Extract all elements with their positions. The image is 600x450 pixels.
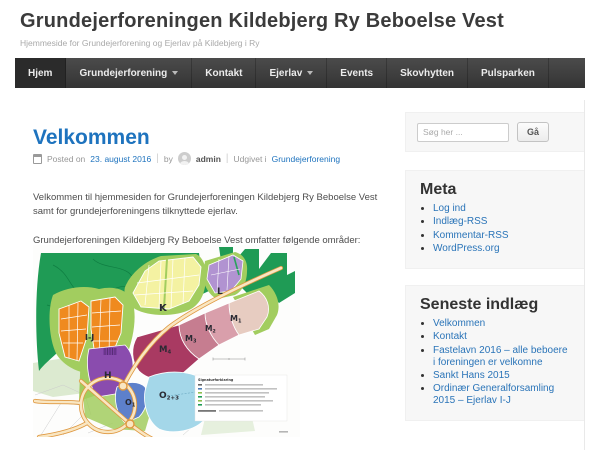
recent-post-link[interactable]: Kontakt <box>433 331 467 342</box>
recent-posts-list: Velkommen Kontakt Fastelavn 2016 – alle … <box>420 318 570 407</box>
nav-item-label: Ejerlav <box>269 68 302 79</box>
wordpress-org-link[interactable]: WordPress.org <box>433 243 500 254</box>
search-input[interactable] <box>417 123 509 142</box>
nav-item-label: Hjem <box>28 68 52 79</box>
meta-links-list: Log ind Indlæg-RSS Kommentar-RSS WordPre… <box>420 203 570 255</box>
nav-item-label: Skovhytten <box>400 68 454 79</box>
chevron-down-icon <box>307 71 313 75</box>
map-legend-title: Signaturforklaring <box>198 378 234 382</box>
category-link[interactable]: Grundejerforening <box>272 154 341 164</box>
meta-separator: | <box>226 153 229 164</box>
map-label-h: H <box>104 371 112 381</box>
map-label-ij: I-J <box>85 333 94 342</box>
nav-item-kontakt[interactable]: Kontakt <box>192 58 256 88</box>
sidebar: Gå Meta Log ind Indlæg-RSS Kommentar-RSS… <box>405 112 585 421</box>
content-right-divider <box>584 100 585 450</box>
avatar <box>178 152 191 165</box>
published-in-label: Udgivet i <box>234 154 267 164</box>
list-item: Indlæg-RSS <box>433 216 570 228</box>
list-item: WordPress.org <box>433 243 570 255</box>
list-item: Log ind <box>433 203 570 215</box>
recent-post-link[interactable]: Ordinær Generalforsamling 2015 – Ejerlav… <box>433 383 554 406</box>
posted-on-label: Posted on <box>47 154 85 164</box>
list-item: Fastelavn 2016 – alle beboere i forening… <box>433 345 570 369</box>
calendar-icon <box>33 154 42 164</box>
comments-rss-link[interactable]: Kommentar-RSS <box>433 230 509 241</box>
recent-post-link[interactable]: Velkommen <box>433 318 485 329</box>
search-widget: Gå <box>405 112 585 152</box>
nav-item-events[interactable]: Events <box>327 58 387 88</box>
entries-rss-link[interactable]: Indlæg-RSS <box>433 216 487 227</box>
nav-item-label: Kontakt <box>205 68 242 79</box>
nav-item-label: Events <box>340 68 373 79</box>
recent-post-link[interactable]: Sankt Hans 2015 <box>433 370 510 381</box>
map-legend: Signaturforklaring <box>195 375 287 421</box>
post-meta: Posted on 23. august 2016 | by admin | U… <box>33 152 340 165</box>
map-plan-number <box>279 431 288 433</box>
search-go-button[interactable]: Gå <box>517 122 549 142</box>
site-title[interactable]: Grundejerforeningen Kildebjerg Ry Beboel… <box>20 10 504 33</box>
list-item: Ordinær Generalforsamling 2015 – Ejerlav… <box>433 383 570 407</box>
list-item: Kontakt <box>433 331 570 343</box>
nav-item-skovhytten[interactable]: Skovhytten <box>387 58 468 88</box>
recent-posts-widget: Seneste indlæg Velkommen Kontakt Fastela… <box>405 285 585 421</box>
author-link[interactable]: admin <box>196 154 221 164</box>
site-tagline: Hjemmeside for Grundejerforening og Ejer… <box>20 38 260 48</box>
nav-item-label: Pulsparken <box>481 68 535 79</box>
list-item: Velkommen <box>433 318 570 330</box>
recent-posts-title: Seneste indlæg <box>420 296 570 314</box>
map-label-l: L <box>217 287 223 297</box>
nav-item-label: Grundejerforening <box>79 68 167 79</box>
zoning-map-image: I-J K L M1 M2 M3 M4 H O1 O2+3 Signaturfo… <box>33 245 300 437</box>
meta-separator: | <box>156 153 159 164</box>
login-link[interactable]: Log ind <box>433 203 466 214</box>
nav-item-pulsparken[interactable]: Pulsparken <box>468 58 549 88</box>
meta-widget: Meta Log ind Indlæg-RSS Kommentar-RSS Wo… <box>405 170 585 269</box>
main-nav: Hjem Grundejerforening Kontakt Ejerlav E… <box>15 58 585 88</box>
nav-item-grundejerforening[interactable]: Grundejerforening <box>66 58 192 88</box>
nav-item-ejerlav[interactable]: Ejerlav <box>256 58 327 88</box>
list-item: Kommentar-RSS <box>433 230 570 242</box>
post-date-link[interactable]: 23. august 2016 <box>90 154 151 164</box>
list-item: Sankt Hans 2015 <box>433 370 570 382</box>
meta-widget-title: Meta <box>420 181 570 199</box>
post-title: Velkommen <box>33 126 150 150</box>
map-label-k: K <box>159 303 168 314</box>
post-paragraph: Velkommen til hjemmesiden for Grundejerf… <box>33 191 390 220</box>
chevron-down-icon <box>172 71 178 75</box>
recent-post-link[interactable]: Fastelavn 2016 – alle beboere i forening… <box>433 345 568 368</box>
nav-item-hjem[interactable]: Hjem <box>15 58 66 88</box>
by-label: by <box>164 154 173 164</box>
zoning-map-svg: I-J K L M1 M2 M3 M4 H O1 O2+3 Signaturfo… <box>33 245 300 437</box>
